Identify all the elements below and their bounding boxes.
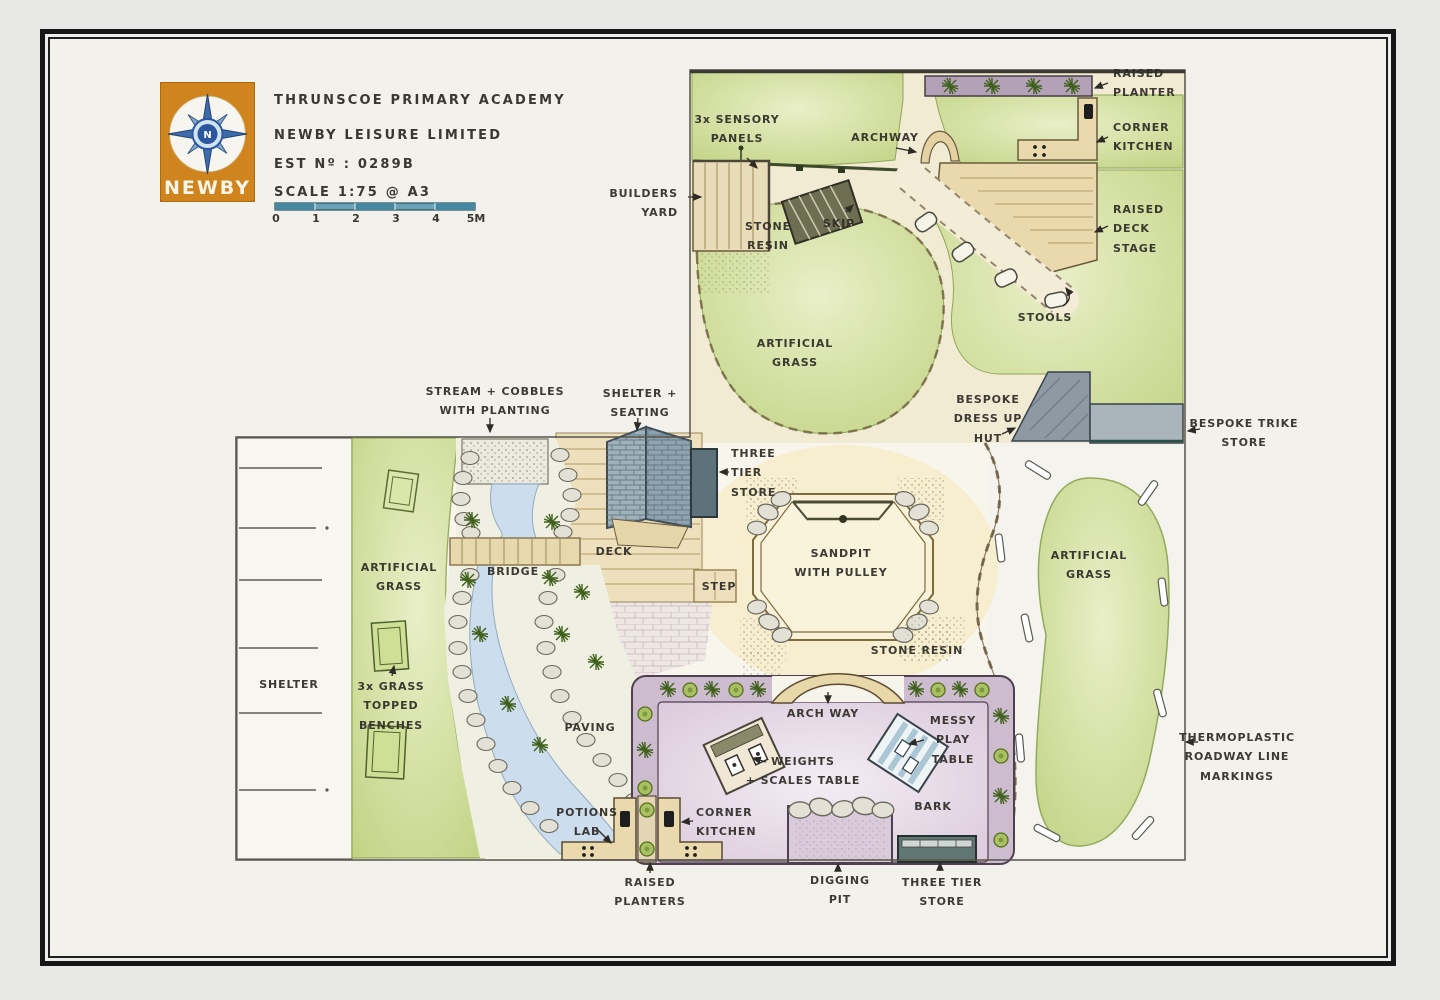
raised-planters-structure xyxy=(638,796,656,862)
label-stone-resin-top: STONE RESIN xyxy=(745,217,791,256)
title-block: N NEWBY THRUNSCOE PRIMARY ACADEMY NEWBY … xyxy=(160,80,500,240)
label-three-tier-store-top: THREE TIER STORE xyxy=(731,444,776,502)
label-stone-resin-mid: STONE RESIN xyxy=(871,641,963,660)
three-tier-store-bottom-structure xyxy=(898,836,976,862)
scale-tick-labels: 0 1 2 3 4 5M xyxy=(274,212,480,228)
label-sandpit: SANDPIT WITH PULLEY xyxy=(794,544,887,583)
label-trike-store: BESPOKE TRIKE STORE xyxy=(1190,414,1299,453)
label-stools: STOOLS xyxy=(1018,308,1072,327)
label-skip: SKIP xyxy=(823,214,855,233)
label-deck: DECK xyxy=(596,542,633,561)
label-sensory-panels: 3x SENSORY PANELS xyxy=(694,110,779,149)
label-dress-up-hut: BESPOKE DRESS UP HUT xyxy=(954,390,1023,448)
label-artificial-grass-top: ARTIFICIAL GRASS xyxy=(757,334,833,373)
bridge-structure xyxy=(450,538,580,565)
grass-bench xyxy=(371,621,408,671)
shelter-seating-structure xyxy=(607,427,691,548)
label-artificial-grass-left: ARTIFICIAL GRASS xyxy=(361,558,437,597)
scale-tick: 0 xyxy=(272,212,280,225)
label-raised-planter: RAISED PLANTER xyxy=(1113,64,1176,103)
label-weights-scales-table: WEIGHTS + SCALES TABLE xyxy=(746,752,861,791)
label-paving: PAVING xyxy=(564,718,615,737)
label-digging-pit: DIGGING PIT xyxy=(810,871,870,910)
label-step: STEP xyxy=(702,577,737,596)
label-bark: BARK xyxy=(914,797,952,816)
planter-box xyxy=(384,470,419,512)
label-corner-kitchen-top: CORNER KITCHEN xyxy=(1113,118,1173,157)
label-stream-cobbles: STREAM + COBBLES WITH PLANTING xyxy=(426,382,565,421)
label-three-tier-store-bottom: THREE TIER STORE xyxy=(902,873,983,912)
logo-wordmark: NEWBY xyxy=(164,177,251,199)
shelter-left-structure xyxy=(237,438,352,859)
newby-logo: N NEWBY xyxy=(160,82,255,202)
logo-letter: N xyxy=(203,130,211,141)
estimate-number: EST Nº : 0289B xyxy=(274,157,415,172)
label-grass-benches: 3x GRASS TOPPED BENCHES xyxy=(357,677,424,735)
scale-tick: 1 xyxy=(312,212,320,225)
scale-tick: 4 xyxy=(432,212,440,225)
scale-tick: 3 xyxy=(392,212,400,225)
three-tier-store-top-structure xyxy=(691,449,717,517)
label-archway-top: ARCHWAY xyxy=(851,128,919,147)
digging-pit-structure xyxy=(788,795,894,863)
trike-store-structure xyxy=(1090,404,1183,443)
label-bridge: BRIDGE xyxy=(487,562,539,581)
drawing-scale: SCALE 1:75 @ A3 xyxy=(274,185,431,200)
label-artificial-grass-right: ARTIFICIAL GRASS xyxy=(1051,546,1127,585)
scale-tick: 5M xyxy=(467,212,486,225)
label-shelter-seating: SHELTER + SEATING xyxy=(603,384,677,423)
label-thermoplastic: THERMOPLASTIC ROADWAY LINE MARKINGS xyxy=(1179,728,1295,786)
label-builders-yard: BUILDERS YARD xyxy=(609,184,678,223)
label-shelter-left: SHELTER xyxy=(259,675,319,694)
raised-planter-structure xyxy=(925,76,1092,96)
label-raised-deck-stage: RAISED DECK STAGE xyxy=(1113,200,1164,258)
label-messy-play-table: MESSY PLAY TABLE xyxy=(930,711,976,769)
label-archway-bottom: ARCH WAY xyxy=(787,704,859,723)
label-corner-kitchen-bottom: CORNER KITCHEN xyxy=(696,803,756,842)
label-raised-planters: RAISED PLANTERS xyxy=(614,873,685,912)
label-potions-lab: POTIONS LAB xyxy=(556,803,618,842)
client-name: THRUNSCOE PRIMARY ACADEMY xyxy=(274,93,566,108)
company-name: NEWBY LEISURE LIMITED xyxy=(274,128,502,143)
scale-tick: 2 xyxy=(352,212,360,225)
